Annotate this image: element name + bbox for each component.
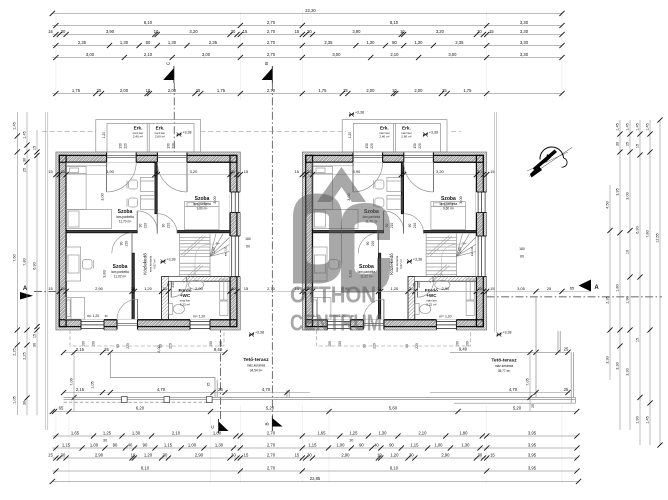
svg-text:Erk.: Erk. (134, 126, 143, 131)
svg-text:15: 15 (244, 169, 249, 174)
svg-text:2,90: 2,90 (195, 452, 204, 457)
svg-text:10: 10 (146, 88, 151, 93)
svg-text:3,00: 3,00 (100, 193, 104, 200)
svg-text:25: 25 (104, 347, 109, 352)
svg-text:3,30: 3,30 (520, 52, 529, 57)
svg-text:25: 25 (196, 88, 201, 93)
svg-text:Erk.: Erk. (380, 126, 389, 131)
svg-text:80: 80 (146, 40, 151, 45)
svg-text:30: 30 (61, 286, 66, 291)
svg-text:3,30: 3,30 (520, 29, 529, 34)
svg-text:3,05: 3,05 (517, 286, 526, 291)
svg-text:210: 210 (413, 223, 417, 229)
svg-text:2,90: 2,90 (195, 286, 204, 291)
svg-text:1,30: 1,30 (366, 40, 375, 45)
svg-text:25: 25 (531, 404, 535, 408)
svg-text:35,77 m²: 35,77 m² (498, 369, 511, 373)
svg-text:1,25: 1,25 (103, 430, 112, 435)
svg-text:2,10: 2,10 (144, 52, 153, 57)
svg-text:2,90: 2,90 (341, 452, 350, 457)
svg-text:3,20: 3,20 (190, 169, 199, 174)
svg-text:30: 30 (22, 158, 26, 162)
svg-text:4,70: 4,70 (262, 387, 271, 392)
svg-text:25: 25 (22, 168, 26, 172)
svg-text:34,54 m²: 34,54 m² (250, 369, 263, 373)
svg-text:2,70: 2,70 (267, 465, 276, 470)
svg-text:3,00: 3,00 (459, 196, 463, 203)
svg-text:25: 25 (218, 387, 223, 392)
svg-text:2,10: 2,10 (390, 52, 399, 57)
svg-text:1,45: 1,45 (645, 123, 649, 130)
svg-text:1,20: 1,20 (144, 452, 153, 457)
svg-text:1,65: 1,65 (71, 430, 80, 435)
svg-text:15: 15 (48, 286, 53, 291)
svg-text:3,20: 3,20 (436, 169, 445, 174)
svg-text:60: 60 (246, 245, 250, 249)
svg-text:2,60 m²: 2,60 m² (155, 135, 165, 139)
svg-text:1,90: 1,90 (625, 296, 629, 303)
svg-text:15: 15 (48, 452, 53, 457)
svg-text:1,45: 1,45 (625, 123, 629, 130)
svg-text:80: 80 (392, 40, 397, 45)
svg-text:15: 15 (295, 29, 300, 34)
svg-text:1,80: 1,80 (213, 430, 222, 435)
svg-text:210: 210 (371, 241, 375, 247)
svg-text:5,22 m²: 5,22 m² (426, 303, 436, 307)
svg-text:9,60 m²: 9,60 m² (197, 207, 208, 211)
svg-text:2,00: 2,00 (414, 88, 423, 93)
svg-text:2,25: 2,25 (13, 348, 17, 355)
svg-text:1,00: 1,00 (90, 442, 99, 447)
svg-text:15: 15 (243, 29, 248, 34)
svg-text:2,70: 2,70 (267, 29, 276, 34)
svg-text:30: 30 (231, 169, 236, 174)
svg-text:220: 220 (370, 143, 374, 149)
svg-text:30: 30 (163, 452, 168, 457)
svg-text:65: 65 (570, 286, 575, 291)
svg-text:15: 15 (490, 169, 495, 174)
svg-text:130: 130 (167, 143, 171, 149)
svg-text:25: 25 (207, 383, 211, 387)
svg-text:3,90: 3,90 (106, 169, 115, 174)
svg-text:6,90: 6,90 (32, 262, 36, 269)
svg-text:5,60: 5,60 (389, 406, 398, 411)
svg-text:3,83: 3,83 (102, 270, 106, 277)
svg-text:3,95: 3,95 (528, 442, 537, 447)
svg-text:210: 210 (390, 223, 394, 229)
svg-text:3,30: 3,30 (520, 40, 529, 45)
svg-text:+3,38: +3,38 (502, 331, 511, 335)
svg-text:1,30: 1,30 (132, 430, 141, 435)
svg-text:1,90: 1,90 (212, 247, 216, 254)
svg-text:máz.kerámia: máz.kerámia (247, 364, 265, 368)
svg-text:1,30: 1,30 (120, 40, 129, 45)
svg-text:1,75: 1,75 (463, 88, 472, 93)
svg-text:3,20: 3,20 (189, 29, 198, 34)
svg-text:5,20: 5,20 (266, 406, 275, 411)
svg-text:7,06: 7,06 (69, 378, 73, 385)
svg-text:2,40 m²: 2,40 m² (379, 135, 389, 139)
svg-text:3,00: 3,00 (213, 196, 217, 203)
svg-text:30: 30 (22, 401, 26, 405)
svg-text:30: 30 (103, 439, 107, 443)
svg-text:7,05: 7,05 (525, 378, 529, 385)
svg-text:1,20: 1,20 (348, 132, 352, 139)
svg-text:6,07 m²: 6,07 m² (153, 259, 157, 269)
svg-text:90: 90 (359, 442, 364, 447)
svg-text:1,30: 1,30 (461, 442, 470, 447)
svg-text:+WC: +WC (426, 293, 437, 298)
svg-text:210: 210 (144, 223, 148, 229)
svg-text:1,15: 1,15 (410, 442, 419, 447)
svg-text:6,20: 6,20 (136, 406, 145, 411)
svg-text:B: B (264, 422, 269, 425)
svg-text:30: 30 (478, 286, 483, 291)
svg-text:22,85: 22,85 (310, 476, 321, 481)
svg-text:2,10: 2,10 (172, 430, 181, 435)
svg-text:3,95: 3,95 (615, 188, 619, 195)
svg-text:15: 15 (48, 29, 53, 34)
svg-text:30: 30 (231, 286, 236, 291)
svg-text:m= 1,20: m= 1,20 (439, 315, 451, 319)
svg-text:2,10: 2,10 (418, 430, 427, 435)
svg-text:2,15: 2,15 (76, 347, 85, 352)
svg-text:2,90: 2,90 (95, 286, 104, 291)
svg-text:30: 30 (104, 314, 108, 318)
svg-text:10: 10 (377, 452, 382, 457)
svg-text:2,35: 2,35 (455, 40, 464, 45)
svg-text:3,30: 3,30 (615, 362, 619, 369)
svg-text:2,40 m²: 2,40 m² (133, 135, 143, 139)
svg-text:3,95: 3,95 (528, 430, 537, 435)
svg-text:+3,38: +3,38 (182, 131, 191, 135)
svg-text:15: 15 (32, 146, 36, 150)
svg-text:2,25: 2,25 (22, 352, 26, 359)
svg-text:30: 30 (307, 452, 312, 457)
svg-text:2,70: 2,70 (267, 40, 276, 45)
svg-text:1,45: 1,45 (13, 122, 17, 129)
svg-text:30: 30 (307, 29, 312, 34)
svg-text:1,00: 1,00 (434, 442, 443, 447)
svg-text:1,80: 1,80 (459, 430, 468, 435)
svg-text:2,90: 2,90 (441, 452, 450, 457)
svg-text:m= 1,20: m= 1,20 (193, 315, 205, 319)
svg-text:210: 210 (125, 241, 129, 247)
svg-text:15: 15 (635, 144, 639, 148)
svg-text:1,25: 1,25 (349, 430, 358, 435)
svg-text:1,65: 1,65 (317, 430, 326, 435)
svg-text:1,45: 1,45 (645, 416, 649, 423)
svg-text:25: 25 (343, 88, 348, 93)
svg-text:10: 10 (131, 452, 136, 457)
svg-text:1,15: 1,15 (62, 442, 71, 447)
svg-text:1,30: 1,30 (414, 40, 423, 45)
svg-text:180: 180 (519, 247, 525, 251)
svg-text:30: 30 (478, 452, 483, 457)
svg-text:Erk.: Erk. (402, 126, 411, 131)
svg-text:2,70: 2,70 (267, 52, 276, 57)
svg-text:30: 30 (231, 29, 236, 34)
svg-text:210: 210 (417, 282, 421, 288)
svg-text:11,70 m²: 11,70 m² (119, 220, 131, 224)
svg-text:3,95: 3,95 (528, 452, 537, 457)
svg-text:+3,38: +3,38 (429, 131, 438, 135)
svg-text:15: 15 (489, 29, 494, 34)
svg-text:1,20: 1,20 (390, 452, 399, 457)
svg-text:2,35: 2,35 (78, 40, 87, 45)
svg-text:2,70: 2,70 (267, 88, 276, 93)
svg-text:10: 10 (392, 88, 397, 93)
svg-text:+3,38: +3,38 (355, 111, 364, 115)
svg-text:Tető-terasz: Tető-terasz (243, 357, 269, 363)
svg-text:22,20: 22,20 (305, 8, 316, 13)
svg-text:25: 25 (564, 347, 569, 352)
svg-text:60: 60 (520, 255, 524, 259)
svg-text:3,00: 3,00 (332, 52, 341, 57)
svg-text:7,80: 7,80 (645, 230, 649, 237)
svg-text:2,15: 2,15 (76, 387, 85, 392)
svg-text:220: 220 (418, 143, 422, 149)
svg-text:5,22 m²: 5,22 m² (180, 303, 190, 307)
svg-text:30: 30 (409, 452, 414, 457)
svg-text:1,00: 1,00 (336, 442, 345, 447)
svg-text:15: 15 (295, 169, 300, 174)
svg-text:8,10: 8,10 (390, 465, 399, 470)
svg-text:30: 30 (477, 169, 482, 174)
svg-text:30: 30 (163, 286, 168, 291)
svg-text:30: 30 (131, 286, 136, 291)
svg-text:3,00: 3,00 (202, 52, 211, 57)
svg-text:1,75: 1,75 (72, 88, 81, 93)
svg-text:m= 1,20: m= 1,20 (87, 314, 99, 318)
svg-text:8,10: 8,10 (144, 20, 153, 25)
svg-text:130: 130 (119, 143, 123, 149)
svg-text:65: 65 (59, 406, 64, 411)
svg-text:6,07 m²: 6,07 m² (399, 259, 403, 269)
svg-text:8,10: 8,10 (390, 20, 399, 25)
svg-text:30: 30 (61, 452, 66, 457)
svg-text:10: 10 (625, 250, 629, 254)
svg-text:1,90: 1,90 (635, 416, 639, 423)
svg-text:220: 220 (124, 143, 128, 149)
svg-text:2,70: 2,70 (267, 286, 276, 291)
svg-text:10: 10 (400, 169, 405, 174)
svg-text:Tető-terasz: Tető-terasz (491, 358, 517, 364)
svg-text:2,00: 2,00 (366, 88, 375, 93)
svg-text:15: 15 (295, 452, 300, 457)
svg-text:3,20: 3,20 (436, 29, 445, 34)
svg-text:7,80: 7,80 (22, 258, 26, 265)
svg-text:1,30: 1,30 (378, 430, 387, 435)
svg-text:210: 210 (167, 223, 171, 229)
svg-text:30: 30 (409, 286, 414, 291)
svg-text:Közlekedő: Közlekedő (143, 253, 148, 275)
svg-text:1,20: 1,20 (391, 286, 400, 291)
svg-text:90: 90 (120, 242, 124, 246)
svg-text:+WC: +WC (180, 293, 191, 298)
svg-text:30: 30 (32, 343, 36, 347)
svg-text:6,90: 6,90 (635, 226, 639, 233)
svg-text:3,30: 3,30 (625, 368, 629, 375)
svg-text:min 2,00: min 2,00 (225, 246, 228, 256)
svg-text:lam.parketta: lam.parketta (193, 202, 211, 206)
svg-text:30: 30 (61, 29, 66, 34)
svg-text:15: 15 (244, 452, 249, 457)
svg-text:90: 90 (162, 224, 166, 228)
svg-text:1,75: 1,75 (217, 88, 226, 93)
svg-text:Erk.: Erk. (156, 126, 165, 131)
svg-text:15: 15 (48, 169, 53, 174)
svg-text:2,35: 2,35 (605, 296, 609, 303)
svg-text:180: 180 (245, 237, 251, 241)
svg-text:máz.kerámia: máz.kerámia (495, 364, 513, 368)
svg-text:9,40: 9,40 (214, 347, 223, 352)
svg-text:11,02 m²: 11,02 m² (114, 275, 126, 279)
svg-text:130: 130 (413, 143, 417, 149)
svg-text:1,20: 1,20 (102, 132, 106, 139)
svg-text:3,90: 3,90 (106, 29, 115, 34)
svg-text:40: 40 (128, 442, 133, 447)
svg-text:1,15: 1,15 (308, 442, 317, 447)
svg-text:min 2,00: min 2,00 (471, 246, 474, 256)
svg-text:90: 90 (143, 442, 148, 447)
svg-text:90: 90 (408, 224, 412, 228)
svg-text:+3,38: +3,38 (413, 258, 422, 262)
svg-text:30: 30 (615, 142, 619, 146)
svg-text:90: 90 (139, 224, 143, 228)
svg-text:3,00: 3,00 (448, 52, 457, 57)
svg-text:12,55: 12,55 (655, 233, 659, 243)
svg-text:CENTRUM: CENTRUM (290, 310, 382, 336)
svg-text:2,70: 2,70 (267, 430, 276, 435)
svg-text:1,80: 1,80 (615, 284, 619, 291)
svg-text:3,00: 3,00 (625, 192, 629, 199)
svg-text:3,30: 3,30 (605, 356, 609, 363)
svg-text:3,00: 3,00 (86, 52, 95, 57)
svg-text:9,60 m²: 9,60 m² (443, 207, 454, 211)
svg-text:25: 25 (564, 387, 569, 392)
svg-text:210: 210 (171, 282, 175, 288)
svg-text:25: 25 (547, 286, 552, 291)
svg-text:25: 25 (625, 142, 629, 146)
svg-text:90: 90 (113, 442, 118, 447)
svg-text:40: 40 (374, 442, 379, 447)
svg-text:15: 15 (635, 338, 639, 342)
svg-text:2,00: 2,00 (120, 88, 129, 93)
svg-text:1,90: 1,90 (458, 247, 462, 254)
svg-text:2,90: 2,90 (95, 452, 104, 457)
svg-text:30: 30 (231, 452, 236, 457)
svg-text:2,35: 2,35 (209, 40, 218, 45)
svg-text:OTTHON: OTTHON (290, 282, 376, 308)
svg-text:1,30: 1,30 (215, 442, 224, 447)
svg-text:4,70: 4,70 (157, 387, 166, 392)
svg-text:30: 30 (307, 169, 312, 174)
svg-text:+3,38: +3,38 (255, 331, 264, 335)
svg-text:5,20: 5,20 (513, 406, 522, 411)
svg-text:10: 10 (154, 29, 159, 34)
svg-text:lam.parketta: lam.parketta (116, 215, 134, 219)
svg-text:2,70: 2,70 (267, 442, 276, 447)
svg-text:2,60 m²: 2,60 m² (401, 135, 411, 139)
svg-text:30: 30 (61, 169, 66, 174)
svg-text:B: B (264, 62, 269, 65)
svg-text:4,70: 4,70 (509, 387, 518, 392)
svg-text:1,45: 1,45 (615, 123, 619, 130)
svg-text:90: 90 (366, 242, 370, 246)
svg-text:1,15: 1,15 (164, 442, 173, 447)
svg-text:1,30: 1,30 (168, 40, 177, 45)
svg-text:3,30: 3,30 (520, 20, 529, 25)
svg-text:1,05: 1,05 (13, 396, 17, 403)
svg-text:7,60: 7,60 (13, 254, 17, 261)
svg-text:10: 10 (154, 169, 159, 174)
svg-text:25: 25 (442, 88, 447, 93)
svg-text:30: 30 (349, 439, 353, 443)
svg-text:2,70: 2,70 (267, 20, 276, 25)
svg-text:1,45: 1,45 (635, 123, 639, 130)
svg-text:2,90: 2,90 (442, 286, 451, 291)
svg-text:1,20: 1,20 (144, 286, 153, 291)
svg-text:+3,38: +3,38 (166, 258, 175, 262)
svg-text:220: 220 (172, 143, 176, 149)
svg-text:A: A (594, 285, 599, 291)
svg-text:2,70: 2,70 (267, 452, 276, 457)
svg-text:10: 10 (400, 29, 405, 34)
svg-text:15: 15 (244, 286, 249, 291)
svg-text:15: 15 (490, 286, 495, 291)
svg-text:30: 30 (477, 29, 482, 34)
svg-text:90: 90 (389, 442, 394, 447)
svg-text:1,45: 1,45 (22, 131, 26, 138)
svg-text:1,05: 1,05 (91, 381, 95, 388)
svg-text:8,10: 8,10 (141, 465, 150, 470)
svg-text:9,40: 9,40 (459, 347, 468, 352)
svg-text:2,35: 2,35 (324, 40, 333, 45)
svg-text:2,00: 2,00 (168, 88, 177, 93)
svg-text:3,90: 3,90 (353, 169, 362, 174)
svg-text:15: 15 (490, 452, 495, 457)
svg-text:lam.parketta: lam.parketta (440, 202, 458, 206)
svg-text:3,95: 3,95 (528, 465, 537, 470)
svg-text:1,00: 1,00 (188, 442, 197, 447)
svg-text:25: 25 (97, 88, 102, 93)
svg-text:130: 130 (365, 143, 369, 149)
svg-text:4,50: 4,50 (605, 201, 609, 208)
svg-text:1,75: 1,75 (318, 88, 327, 93)
svg-text:lam.parketta: lam.parketta (111, 270, 129, 274)
svg-text:15: 15 (32, 334, 36, 338)
svg-text:2,00: 2,00 (157, 345, 161, 352)
svg-text:3,90: 3,90 (352, 29, 361, 34)
